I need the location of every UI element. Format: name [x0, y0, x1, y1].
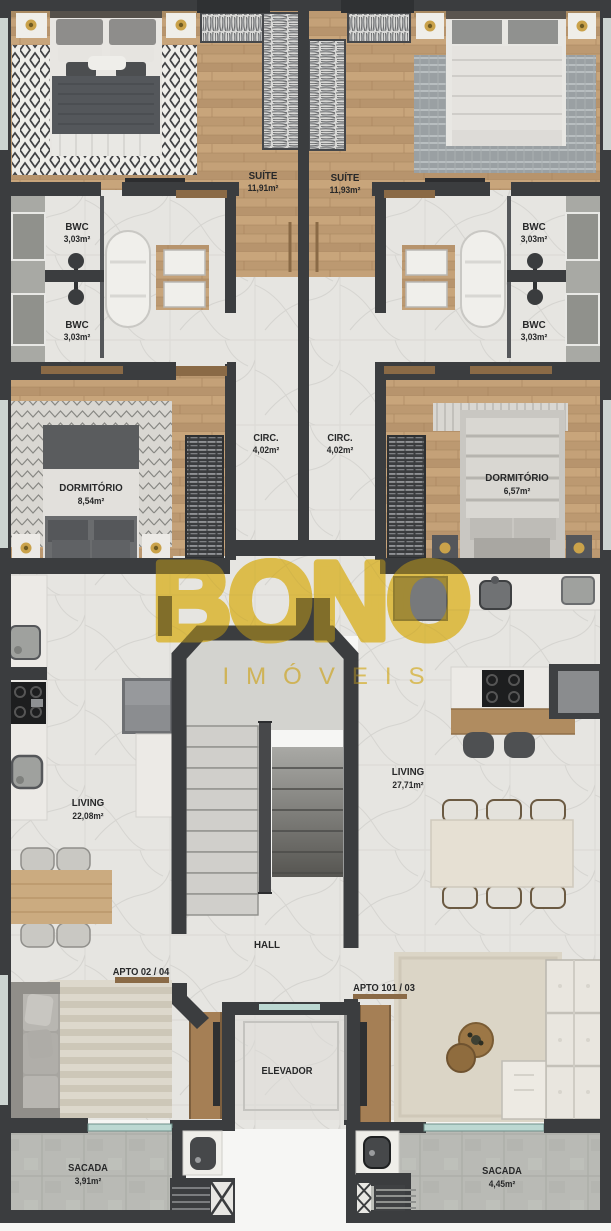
svg-text:11,93m²: 11,93m² — [330, 185, 361, 195]
svg-text:4,45m²: 4,45m² — [489, 1179, 516, 1189]
svg-text:ELEVADOR: ELEVADOR — [262, 1066, 313, 1077]
svg-text:8,54m²: 8,54m² — [78, 496, 105, 506]
svg-text:4,02m²: 4,02m² — [253, 445, 280, 455]
svg-text:DORMITÓRIO: DORMITÓRIO — [485, 471, 548, 484]
svg-text:LIVING: LIVING — [72, 798, 105, 809]
svg-text:22,08m²: 22,08m² — [72, 811, 103, 821]
svg-text:3,03m²: 3,03m² — [64, 332, 91, 342]
svg-text:APTO 101 / 03: APTO 101 / 03 — [353, 983, 415, 994]
svg-text:3,03m²: 3,03m² — [64, 234, 91, 244]
svg-text:SACADA: SACADA — [482, 1166, 522, 1177]
svg-text:IMÓVEIS: IMÓVEIS — [222, 663, 441, 690]
svg-text:4,02m²: 4,02m² — [327, 445, 354, 455]
svg-text:3,03m²: 3,03m² — [521, 332, 548, 342]
svg-text:3,03m²: 3,03m² — [521, 234, 548, 244]
svg-text:SACADA: SACADA — [68, 1163, 108, 1174]
svg-text:6,57m²: 6,57m² — [504, 486, 531, 496]
svg-text:DORMITÓRIO: DORMITÓRIO — [59, 481, 122, 494]
svg-text:BWC: BWC — [65, 320, 89, 331]
svg-text:BWC: BWC — [65, 222, 89, 233]
svg-text:CIRC.: CIRC. — [253, 433, 279, 444]
svg-text:BONO: BONO — [152, 540, 468, 663]
svg-text:CIRC.: CIRC. — [327, 433, 353, 444]
svg-text:3,91m²: 3,91m² — [75, 1176, 102, 1186]
svg-text:LIVING: LIVING — [392, 767, 425, 778]
svg-text:11,91m²: 11,91m² — [248, 183, 279, 193]
svg-text:HALL: HALL — [254, 940, 280, 951]
svg-text:27,71m²: 27,71m² — [392, 780, 423, 790]
svg-text:SUÍTE: SUÍTE — [249, 169, 278, 182]
svg-text:BWC: BWC — [522, 222, 546, 233]
svg-text:SUÍTE: SUÍTE — [331, 171, 360, 184]
svg-text:BWC: BWC — [522, 320, 546, 331]
svg-text:APTO 02 / 04: APTO 02 / 04 — [113, 967, 170, 978]
